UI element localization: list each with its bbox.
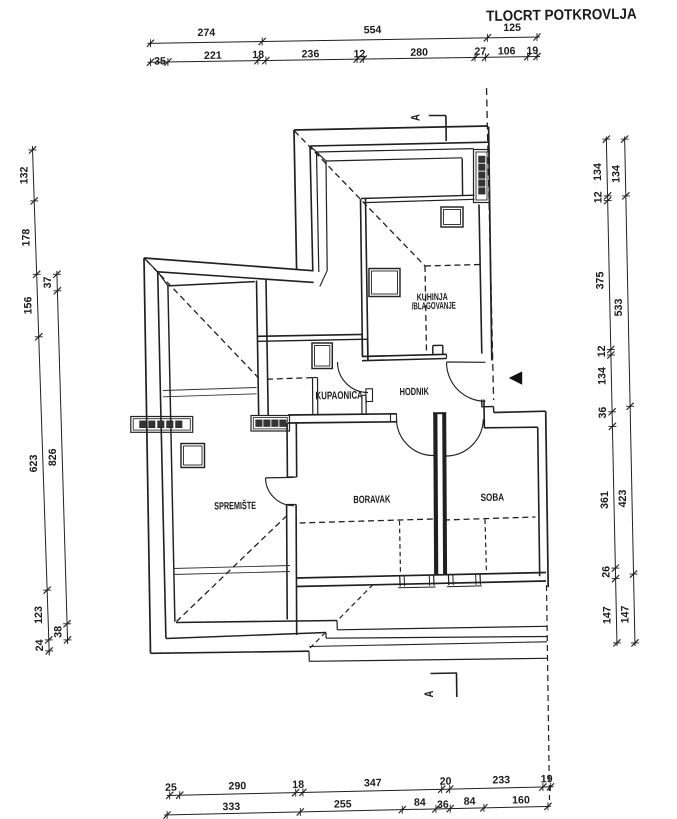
svg-text:280: 280 (410, 47, 428, 59)
svg-text:19: 19 (526, 45, 538, 57)
svg-text:18: 18 (252, 49, 264, 61)
svg-text:125: 125 (503, 22, 521, 34)
svg-text:84: 84 (414, 797, 426, 809)
svg-text:38: 38 (52, 626, 64, 638)
svg-text:134: 134 (592, 163, 604, 181)
svg-text:333: 333 (222, 801, 240, 813)
svg-text:826: 826 (47, 448, 59, 466)
svg-text:SOBA: SOBA (480, 491, 504, 504)
svg-text:132: 132 (18, 166, 30, 184)
svg-text:84: 84 (464, 796, 476, 808)
svg-text:361: 361 (599, 491, 611, 509)
svg-text:375: 375 (594, 272, 606, 290)
svg-text:25: 25 (165, 782, 177, 794)
svg-text:255: 255 (334, 798, 352, 810)
svg-text:221: 221 (204, 50, 222, 62)
svg-text:290: 290 (228, 780, 246, 792)
svg-text:35: 35 (154, 55, 166, 67)
svg-text:160: 160 (512, 794, 530, 806)
svg-text:147: 147 (601, 606, 613, 624)
svg-text:A: A (423, 690, 436, 697)
svg-text:19: 19 (541, 773, 553, 785)
svg-text:134: 134 (596, 367, 608, 385)
svg-text:37: 37 (42, 277, 54, 289)
svg-text:SPREMIŠTE: SPREMIŠTE (214, 498, 256, 511)
svg-text:147: 147 (619, 606, 631, 624)
svg-text:134: 134 (610, 165, 622, 183)
svg-text:27: 27 (474, 46, 486, 58)
svg-text:BORAVAK: BORAVAK (353, 493, 391, 505)
svg-text:12: 12 (353, 48, 365, 60)
svg-text:12: 12 (596, 345, 608, 357)
svg-text:156: 156 (23, 297, 35, 315)
svg-text:A: A (410, 114, 423, 121)
svg-text:36: 36 (597, 407, 609, 419)
svg-text:26: 26 (600, 566, 612, 578)
svg-text:123: 123 (33, 606, 45, 624)
svg-text:KUPAONICA: KUPAONICA (315, 389, 363, 402)
svg-text:20: 20 (440, 776, 452, 788)
svg-text:533: 533 (613, 299, 625, 317)
svg-text:106: 106 (498, 45, 516, 57)
svg-text:12: 12 (593, 191, 605, 203)
svg-text:/BLAGOVANJE: /BLAGOVANJE (412, 299, 457, 312)
svg-text:623: 623 (28, 455, 40, 473)
svg-text:347: 347 (364, 777, 382, 789)
svg-text:236: 236 (302, 48, 320, 60)
svg-text:274: 274 (197, 27, 215, 39)
svg-text:24: 24 (34, 639, 46, 651)
svg-text:423: 423 (617, 490, 629, 508)
svg-text:18: 18 (292, 779, 304, 791)
svg-text:554: 554 (364, 24, 382, 36)
svg-text:178: 178 (20, 229, 32, 247)
svg-text:36: 36 (437, 799, 449, 811)
svg-text:HODNIK: HODNIK (399, 386, 429, 398)
svg-text:233: 233 (492, 774, 510, 786)
